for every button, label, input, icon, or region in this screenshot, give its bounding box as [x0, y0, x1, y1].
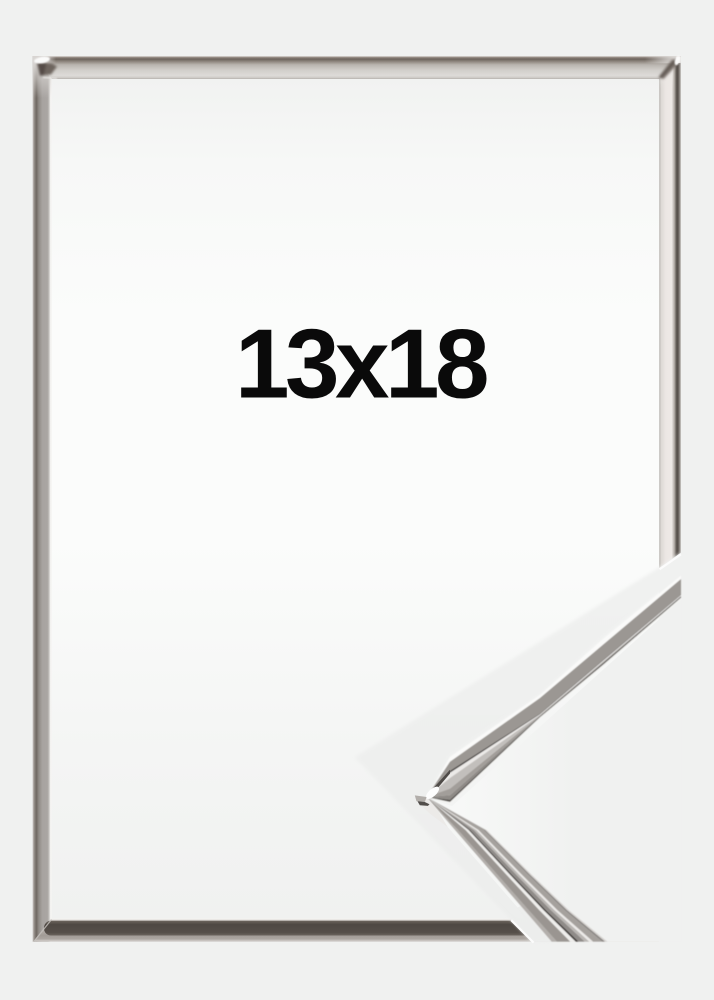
svg-text:13x18: 13x18	[235, 309, 487, 419]
